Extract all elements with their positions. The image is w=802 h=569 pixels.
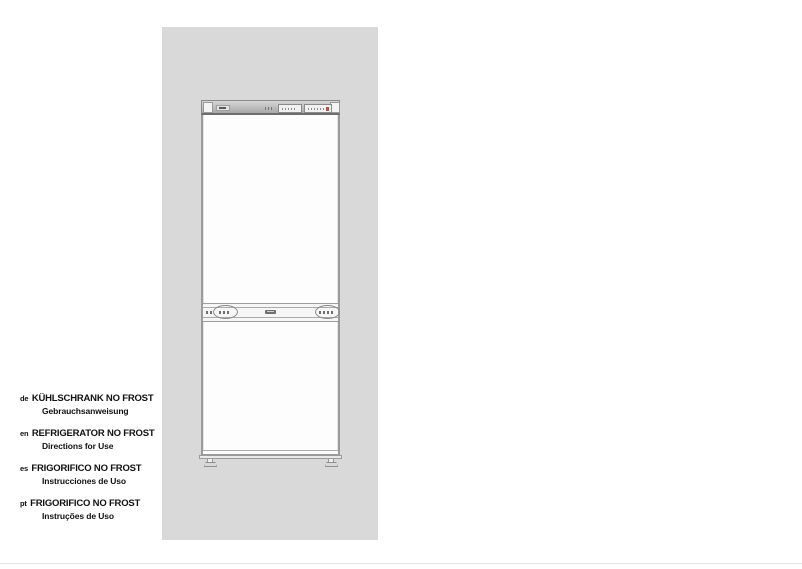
band-marks xyxy=(319,311,334,314)
display-scale-ticks xyxy=(308,108,326,110)
temperature-display-fridge xyxy=(278,104,302,113)
subtitle-de: Gebrauchsanweisung xyxy=(42,406,154,416)
band-line xyxy=(203,303,338,304)
band-marks xyxy=(219,311,229,314)
lang-code-pt: pt xyxy=(20,499,27,508)
display-scale-ticks xyxy=(282,108,296,110)
panel-label-marks xyxy=(265,107,274,110)
fridge-illustration xyxy=(201,100,340,467)
upper-door xyxy=(203,115,338,303)
title-de: de KÜHLSCHRANK NO FROST xyxy=(20,393,154,404)
temperature-display-freezer xyxy=(304,104,332,113)
subtitle-en: Directions for Use xyxy=(42,441,154,451)
lang-code-en: en xyxy=(20,429,28,438)
cover-photo-panel xyxy=(162,27,378,540)
lang-code-es: es xyxy=(20,464,28,473)
language-title-block: de KÜHLSCHRANK NO FROST Gebrauchsanweisu… xyxy=(20,393,154,521)
brand-badge xyxy=(216,105,230,111)
brand-logo xyxy=(265,310,276,314)
adjustable-foot-right-base xyxy=(325,462,338,467)
subtitle-pt: Instruções de Uso xyxy=(42,511,154,521)
lang-block-en: en REFRIGERATOR NO FROST Directions for … xyxy=(20,428,154,451)
alarm-indicator-lamp xyxy=(326,107,329,111)
base-plinth xyxy=(199,455,342,459)
control-panel xyxy=(201,100,340,115)
lang-block-pt: pt FRIGORIFICO NO FROST Instruções de Us… xyxy=(20,498,154,521)
manual-cover-page: de KÜHLSCHRANK NO FROST Gebrauchsanweisu… xyxy=(0,0,802,569)
door-bottom-edge xyxy=(203,450,338,451)
title-en: en REFRIGERATOR NO FROST xyxy=(20,428,154,439)
title-es: es FRIGORIFICO NO FROST xyxy=(20,463,154,474)
title-text-de: KÜHLSCHRANK NO FROST xyxy=(32,393,154,404)
title-text-pt: FRIGORIFICO NO FROST xyxy=(30,498,140,509)
adjustable-foot-left-base xyxy=(204,462,217,467)
lang-code-de: de xyxy=(20,394,28,403)
title-text-es: FRIGORIFICO NO FROST xyxy=(31,463,141,474)
lower-door xyxy=(203,322,338,450)
hinge-cover-left xyxy=(203,102,213,113)
title-pt: pt FRIGORIFICO NO FROST xyxy=(20,498,154,509)
door-handle-band xyxy=(203,303,338,322)
title-text-en: REFRIGERATOR NO FROST xyxy=(32,428,155,439)
subtitle-es: Instrucciones de Uso xyxy=(42,476,154,486)
lang-block-es: es FRIGORIFICO NO FROST Instrucciones de… xyxy=(20,463,154,486)
footer-divider xyxy=(0,563,802,564)
lang-block-de: de KÜHLSCHRANK NO FROST Gebrauchsanweisu… xyxy=(20,393,154,416)
